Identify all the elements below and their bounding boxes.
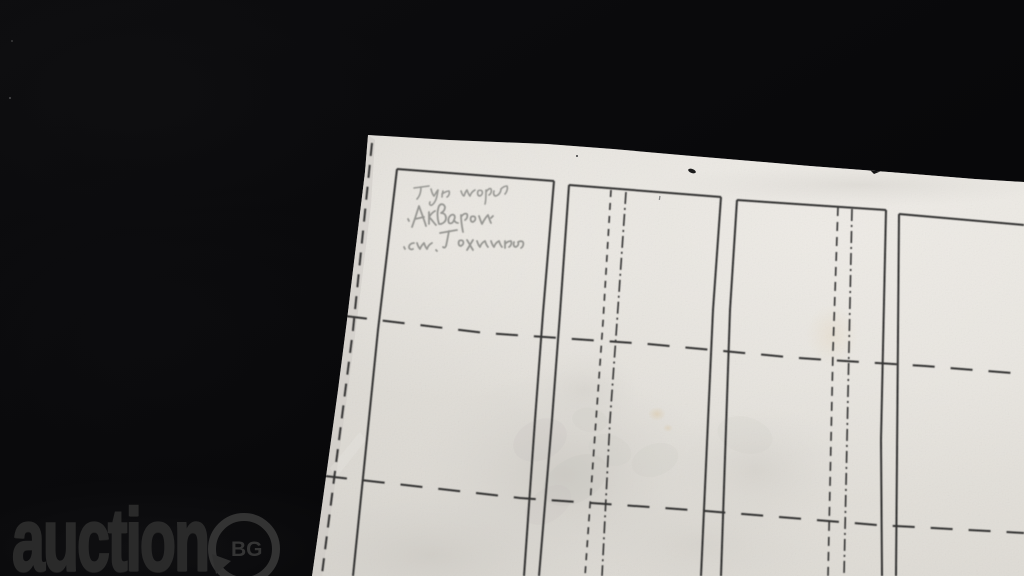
svg-text:auction: auction	[12, 490, 208, 576]
svg-text:BG: BG	[231, 538, 263, 561]
